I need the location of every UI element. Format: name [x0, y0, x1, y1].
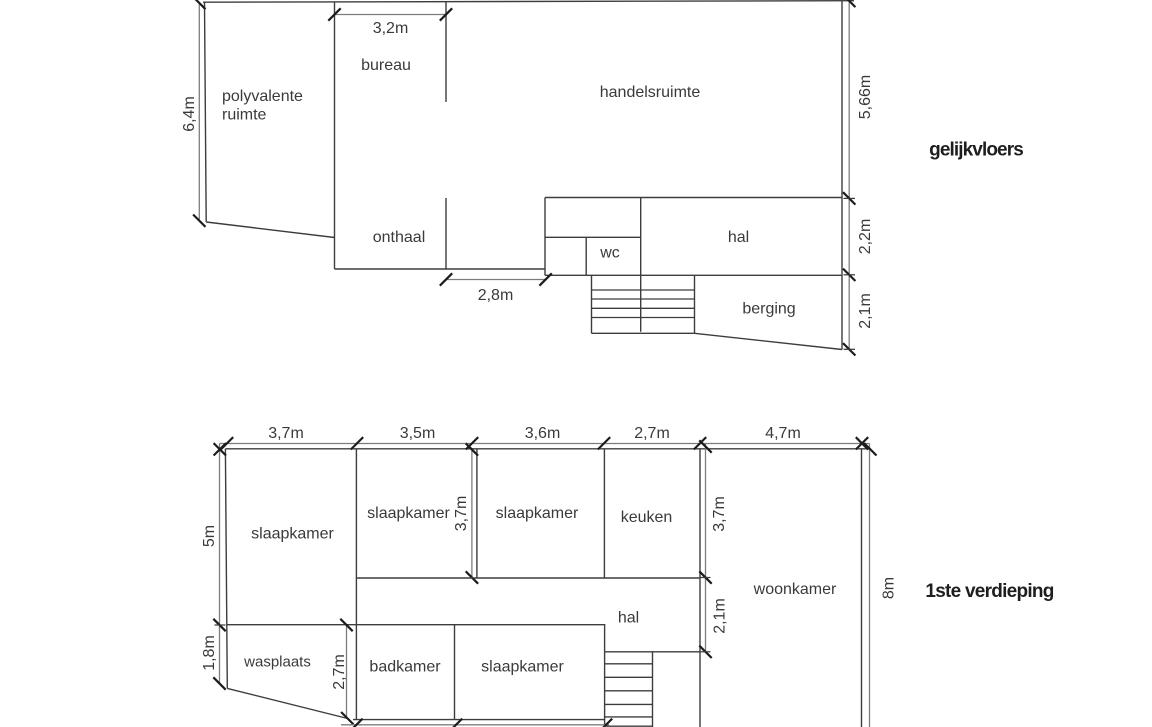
svg-text:3,5m: 3,5m [400, 425, 436, 442]
svg-text:8m: 8m [881, 577, 898, 599]
svg-text:2,7m: 2,7m [331, 654, 348, 690]
svg-text:1,8m: 1,8m [201, 635, 218, 671]
svg-text:1ste verdieping: 1ste verdieping [925, 581, 1053, 602]
svg-text:3,7m: 3,7m [711, 496, 728, 532]
svg-text:3,7m: 3,7m [268, 425, 304, 442]
svg-text:badkamer: badkamer [369, 659, 441, 676]
svg-text:slaapkamer: slaapkamer [367, 505, 450, 522]
svg-text:3,7m: 3,7m [453, 496, 470, 532]
svg-text:slaapkamer: slaapkamer [481, 659, 564, 676]
svg-text:bureau: bureau [361, 57, 411, 74]
svg-text:2,2m: 2,2m [857, 219, 874, 255]
svg-text:4,7m: 4,7m [765, 425, 801, 442]
svg-text:2,1m: 2,1m [857, 293, 874, 329]
svg-text:berging: berging [742, 301, 795, 318]
svg-text:handelsruimte: handelsruimte [600, 84, 701, 101]
svg-text:3,6m: 3,6m [525, 425, 561, 442]
svg-text:5,66m: 5,66m [857, 75, 874, 119]
svg-text:wc: wc [599, 245, 620, 262]
svg-text:polyvalente: polyvalente [222, 88, 303, 105]
svg-text:ruimte: ruimte [222, 107, 267, 124]
svg-text:slaapkamer: slaapkamer [496, 505, 579, 522]
svg-text:3,2m: 3,2m [373, 20, 409, 37]
svg-text:hal: hal [618, 610, 639, 627]
svg-text:5m: 5m [201, 525, 218, 547]
svg-text:onthaal: onthaal [373, 229, 426, 246]
svg-text:2,8m: 2,8m [478, 287, 514, 304]
svg-text:keuken: keuken [621, 509, 673, 526]
svg-text:hal: hal [728, 229, 749, 246]
svg-text:woonkamer: woonkamer [753, 581, 837, 598]
svg-text:6,4m: 6,4m [181, 96, 198, 132]
svg-text:2,1m: 2,1m [712, 598, 729, 634]
svg-text:wasplaats: wasplaats [243, 654, 311, 671]
svg-text:gelijkvloers: gelijkvloers [929, 140, 1023, 161]
svg-text:slaapkamer: slaapkamer [251, 526, 334, 543]
svg-text:2,7m: 2,7m [634, 425, 670, 442]
